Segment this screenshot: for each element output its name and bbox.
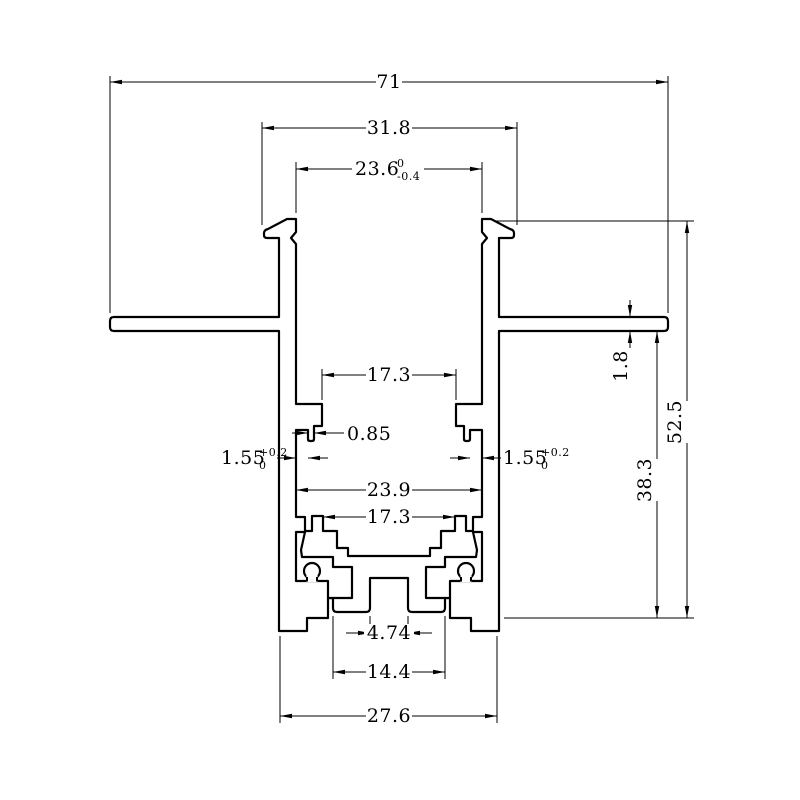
dim-label: 1.8 bbox=[610, 350, 632, 382]
dim-label: 27.6 bbox=[367, 705, 411, 727]
dim-label: +0.2 bbox=[541, 446, 570, 459]
dim-label: 17.3 bbox=[367, 364, 411, 386]
dim-label: 0 bbox=[397, 157, 405, 170]
dim-label: 17.3 bbox=[367, 506, 411, 528]
dim-label: 0 bbox=[259, 459, 267, 472]
dim-label: 4.74 bbox=[367, 622, 411, 644]
dim-label: 71 bbox=[376, 71, 401, 93]
drawing-canvas: 7131.823.60-0.417.30.851.55+0.201.55+0.2… bbox=[0, 0, 800, 800]
dim-label: 38.3 bbox=[634, 458, 656, 502]
dim-label: 0 bbox=[541, 459, 549, 472]
screw-port-right-neck bbox=[461, 575, 472, 582]
dim-label: 23.6 bbox=[355, 158, 399, 180]
dim-label: 31.8 bbox=[367, 117, 411, 139]
dim-label: 14.4 bbox=[367, 661, 411, 683]
dim-label: +0.2 bbox=[259, 446, 288, 459]
dim-label: 0.85 bbox=[347, 423, 391, 445]
dim-label: 23.9 bbox=[367, 479, 411, 501]
dim-label: 52.5 bbox=[664, 400, 686, 444]
technical-drawing: 7131.823.60-0.417.30.851.55+0.201.55+0.2… bbox=[0, 0, 800, 800]
screw-port-left-neck bbox=[307, 575, 318, 582]
dim-label: -0.4 bbox=[397, 170, 420, 183]
